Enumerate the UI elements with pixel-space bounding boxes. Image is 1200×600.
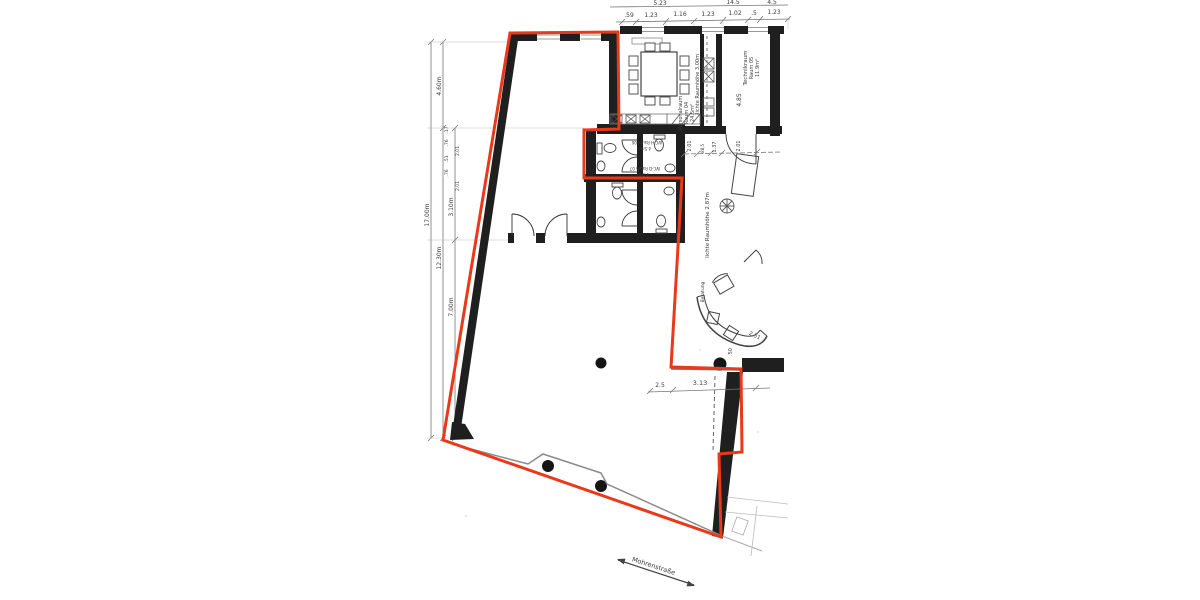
dim-top-3: 1.16 bbox=[673, 11, 687, 18]
plant-icon bbox=[720, 199, 734, 213]
label-wc-h-name: WC-H Raum 06 bbox=[631, 140, 662, 145]
dim-left-1230: 12.30m bbox=[436, 246, 443, 269]
dining-table bbox=[629, 43, 689, 105]
wc-fixtures bbox=[597, 135, 675, 233]
dim-top-2: 1.23 bbox=[644, 12, 658, 19]
dim-top-6: .5 bbox=[751, 10, 757, 17]
dim-top-5: 1.02 bbox=[728, 10, 742, 17]
dim-top-upper-2: 14.5 bbox=[726, 0, 740, 6]
scan-specks bbox=[465, 349, 759, 517]
dim-left-700: 7.00m bbox=[448, 297, 455, 316]
dim-left-d6: 2.01 bbox=[455, 181, 461, 191]
dim-top-4: 1.23 bbox=[701, 11, 715, 18]
dimensions-inner: 2.5 3.13 .50 2.51 2.01 .88,5 1.37 2.01 4… bbox=[647, 93, 782, 394]
dim-left-d1: .17 bbox=[444, 126, 450, 133]
label-wc-d-area: 4.5m² bbox=[637, 172, 649, 177]
dim-door-4: 2.01 bbox=[736, 140, 742, 151]
dim-right-height: 4.85 bbox=[736, 93, 743, 107]
dim-left-310: 3.10m bbox=[448, 197, 455, 216]
dim-left-d4: .76 bbox=[444, 169, 450, 176]
dim-left-d2: .76 bbox=[444, 139, 450, 146]
dim-left-d3: .51 bbox=[444, 155, 450, 162]
street-arrow: Mohrenstraße bbox=[617, 555, 695, 586]
dim-diagonal: 2.51 bbox=[748, 331, 762, 342]
label-hall-height: lichte Raumhöhe 2.87m bbox=[705, 192, 711, 258]
label-wc-d-name: WC-D Raum 07 bbox=[629, 166, 660, 171]
arrowhead-right-icon bbox=[687, 581, 696, 587]
columns bbox=[542, 358, 727, 493]
dim-top-1: .59 bbox=[624, 12, 634, 19]
label-technikraum-area: 11.9m² bbox=[755, 59, 761, 77]
dim-bottom-small: 2.5 bbox=[655, 382, 665, 389]
arrowhead-left-icon bbox=[617, 559, 626, 565]
floor-plan-svg: 5.23 14.5 4.5 .59 1.23 1.16 1.23 1.02 .5… bbox=[0, 0, 1200, 600]
dim-left-460: 4.60m bbox=[436, 76, 443, 95]
floor-plan-page: 5.23 14.5 4.5 .59 1.23 1.16 1.23 1.02 .5… bbox=[0, 0, 1200, 600]
dim-door-2: .88,5 bbox=[700, 143, 705, 154]
dim-left-d5: 2.01 bbox=[455, 146, 461, 156]
label-beratung: Beratung bbox=[700, 281, 706, 302]
dim-top-7: 1.23 bbox=[767, 9, 781, 16]
dim-door-1: 2.01 bbox=[687, 140, 693, 151]
dim-top-upper-3: 4.5 bbox=[767, 0, 777, 6]
dim-door-3: 1.37 bbox=[712, 141, 718, 152]
dim-column-offset: .50 bbox=[728, 348, 734, 356]
dim-bottom-main: 3.13 bbox=[693, 379, 707, 387]
dim-top-upper-1: 5.23 bbox=[653, 0, 667, 7]
dim-left-overall: 17.00m bbox=[424, 203, 431, 226]
label-wc-h-area: 4.5m² bbox=[639, 146, 651, 151]
label-kitchen-height: lichte Raumhöhe 3.00m bbox=[695, 54, 701, 114]
